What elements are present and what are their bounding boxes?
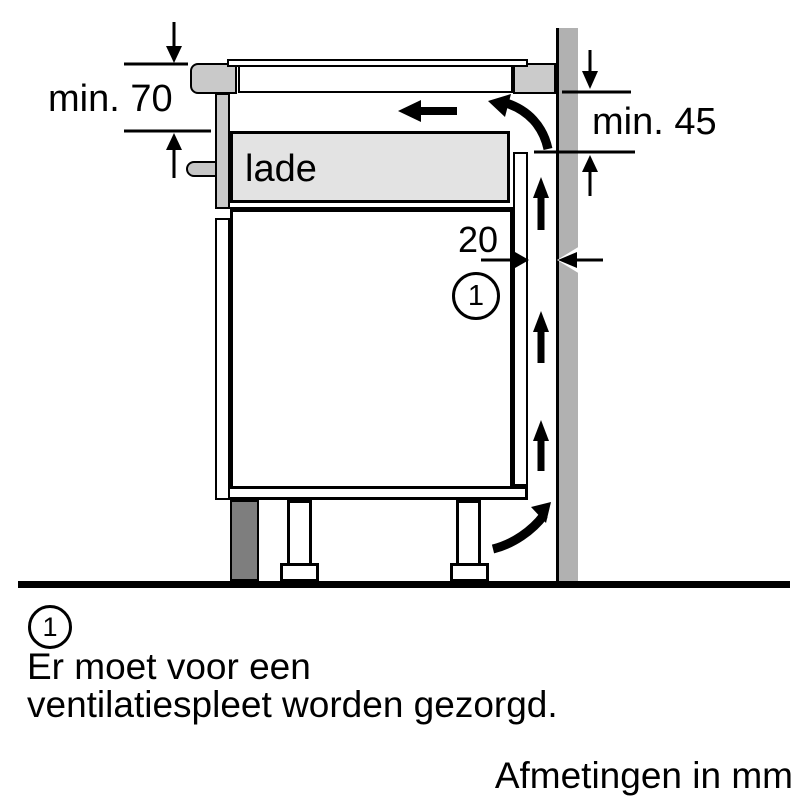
callout-1-badge: 1	[452, 272, 500, 320]
drawer-label: lade	[245, 150, 317, 188]
dim-label-20: 20	[458, 222, 498, 258]
dim-label-min-45: min. 45	[592, 103, 717, 141]
airflow-bottom-curve-arrow-icon	[493, 515, 544, 549]
legend-text-line2: ventilatiespleet worden gezorgd.	[27, 686, 558, 723]
legend-text-line1: Er moet voor een	[27, 648, 311, 685]
dim-gap-20	[481, 246, 603, 274]
callout-1-number: 1	[468, 282, 484, 311]
legend-ref-number: 1	[42, 614, 57, 641]
installation-diagram: min. 70 min. 45 lade 20 1 1 Er moet voor…	[0, 0, 800, 800]
airflow-arrows	[398, 94, 551, 549]
legend-ref-badge: 1	[28, 605, 72, 649]
dim-label-min-70: min. 70	[48, 80, 173, 118]
airflow-top-curve-arrow-icon	[506, 103, 548, 149]
units-note: Afmetingen in mm	[495, 757, 793, 794]
